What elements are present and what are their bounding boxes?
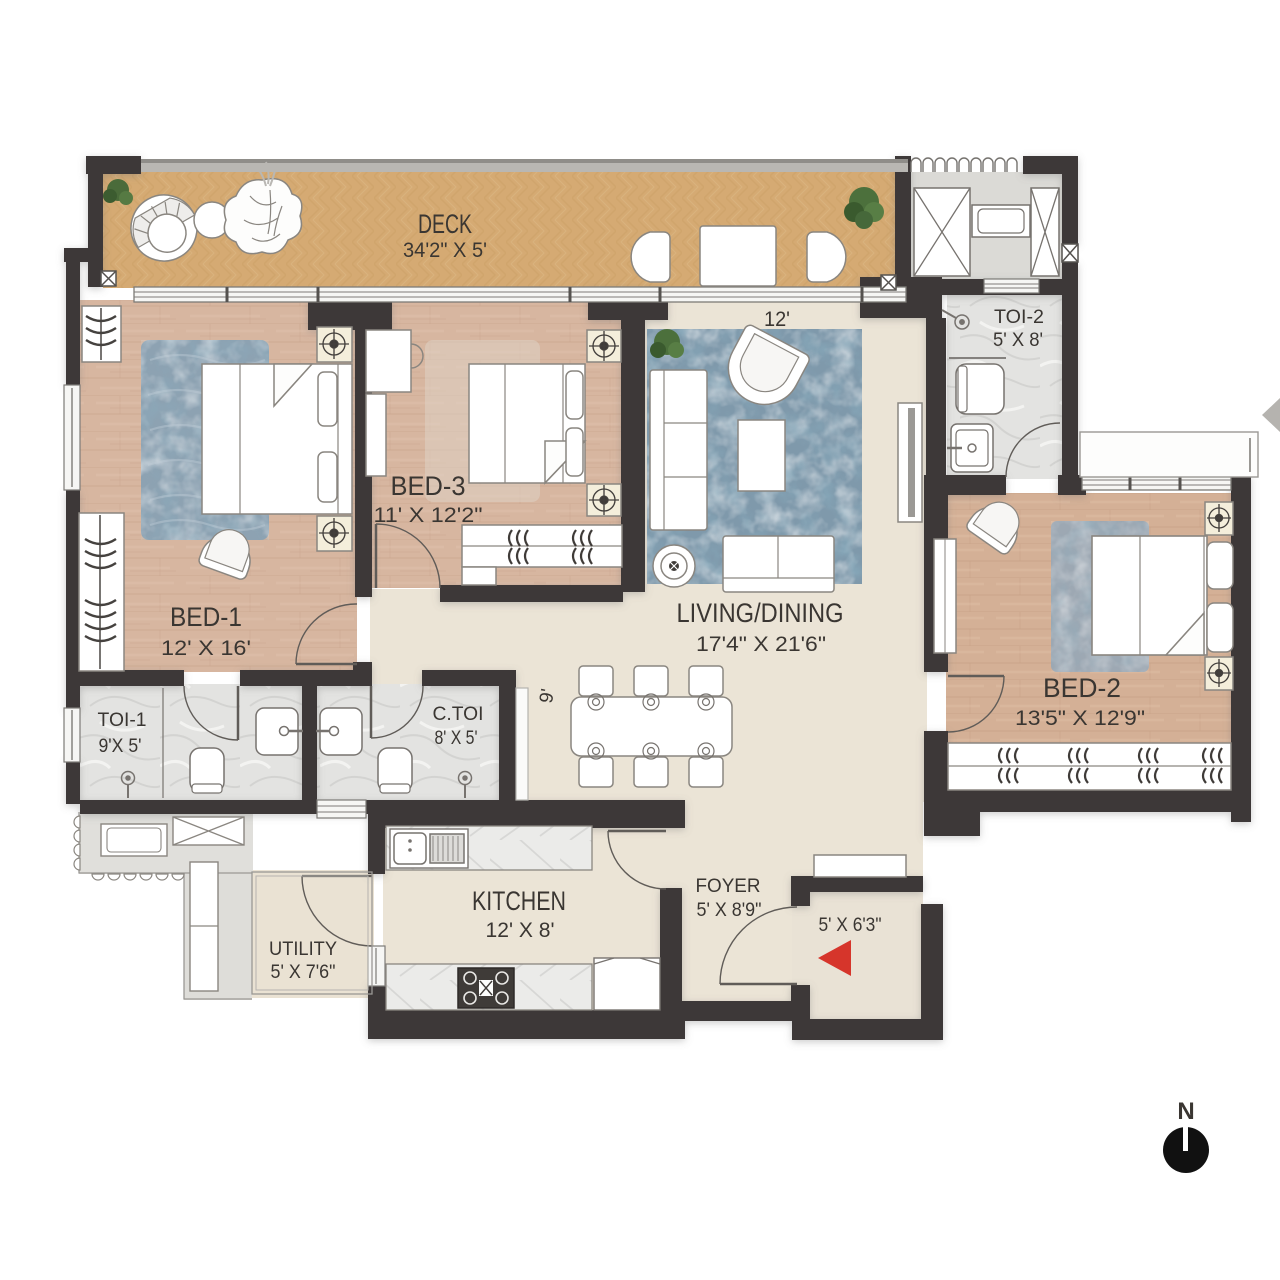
- svg-text:17'4" X 21'6": 17'4" X 21'6": [696, 633, 826, 656]
- svg-text:LIVING/DINING: LIVING/DINING: [677, 598, 844, 628]
- svg-text:5' X 8'9": 5' X 8'9": [697, 900, 762, 921]
- svg-text:KITCHEN: KITCHEN: [472, 886, 566, 916]
- svg-text:5' X 7'6": 5' X 7'6": [271, 962, 336, 983]
- svg-text:13'5" X 12'9": 13'5" X 12'9": [1015, 707, 1145, 730]
- svg-text:TOI-2: TOI-2: [994, 307, 1044, 328]
- svg-text:TOI-1: TOI-1: [98, 710, 147, 731]
- svg-text:34'2" X 5': 34'2" X 5': [403, 239, 487, 262]
- svg-text:FOYER: FOYER: [696, 876, 761, 897]
- svg-text:N: N: [1177, 1098, 1194, 1125]
- svg-text:12' X 8': 12' X 8': [486, 919, 555, 942]
- svg-text:C.TOI: C.TOI: [433, 704, 484, 725]
- svg-text:DECK: DECK: [418, 209, 472, 239]
- svg-text:5' X 6'3": 5' X 6'3": [819, 915, 882, 936]
- svg-text:12': 12': [764, 308, 790, 331]
- svg-text:BED-2: BED-2: [1043, 673, 1121, 703]
- svg-text:UTILITY: UTILITY: [269, 939, 337, 960]
- svg-text:BED-1: BED-1: [170, 602, 242, 632]
- svg-text:BED-3: BED-3: [391, 471, 466, 501]
- svg-text:8' X 5': 8' X 5': [435, 728, 478, 749]
- svg-text:9'X 5': 9'X 5': [99, 736, 142, 757]
- svg-text:11' X 12'2": 11' X 12'2": [374, 504, 483, 527]
- svg-text:12' X 16': 12' X 16': [161, 637, 251, 660]
- svg-text:5' X 8': 5' X 8': [993, 330, 1043, 351]
